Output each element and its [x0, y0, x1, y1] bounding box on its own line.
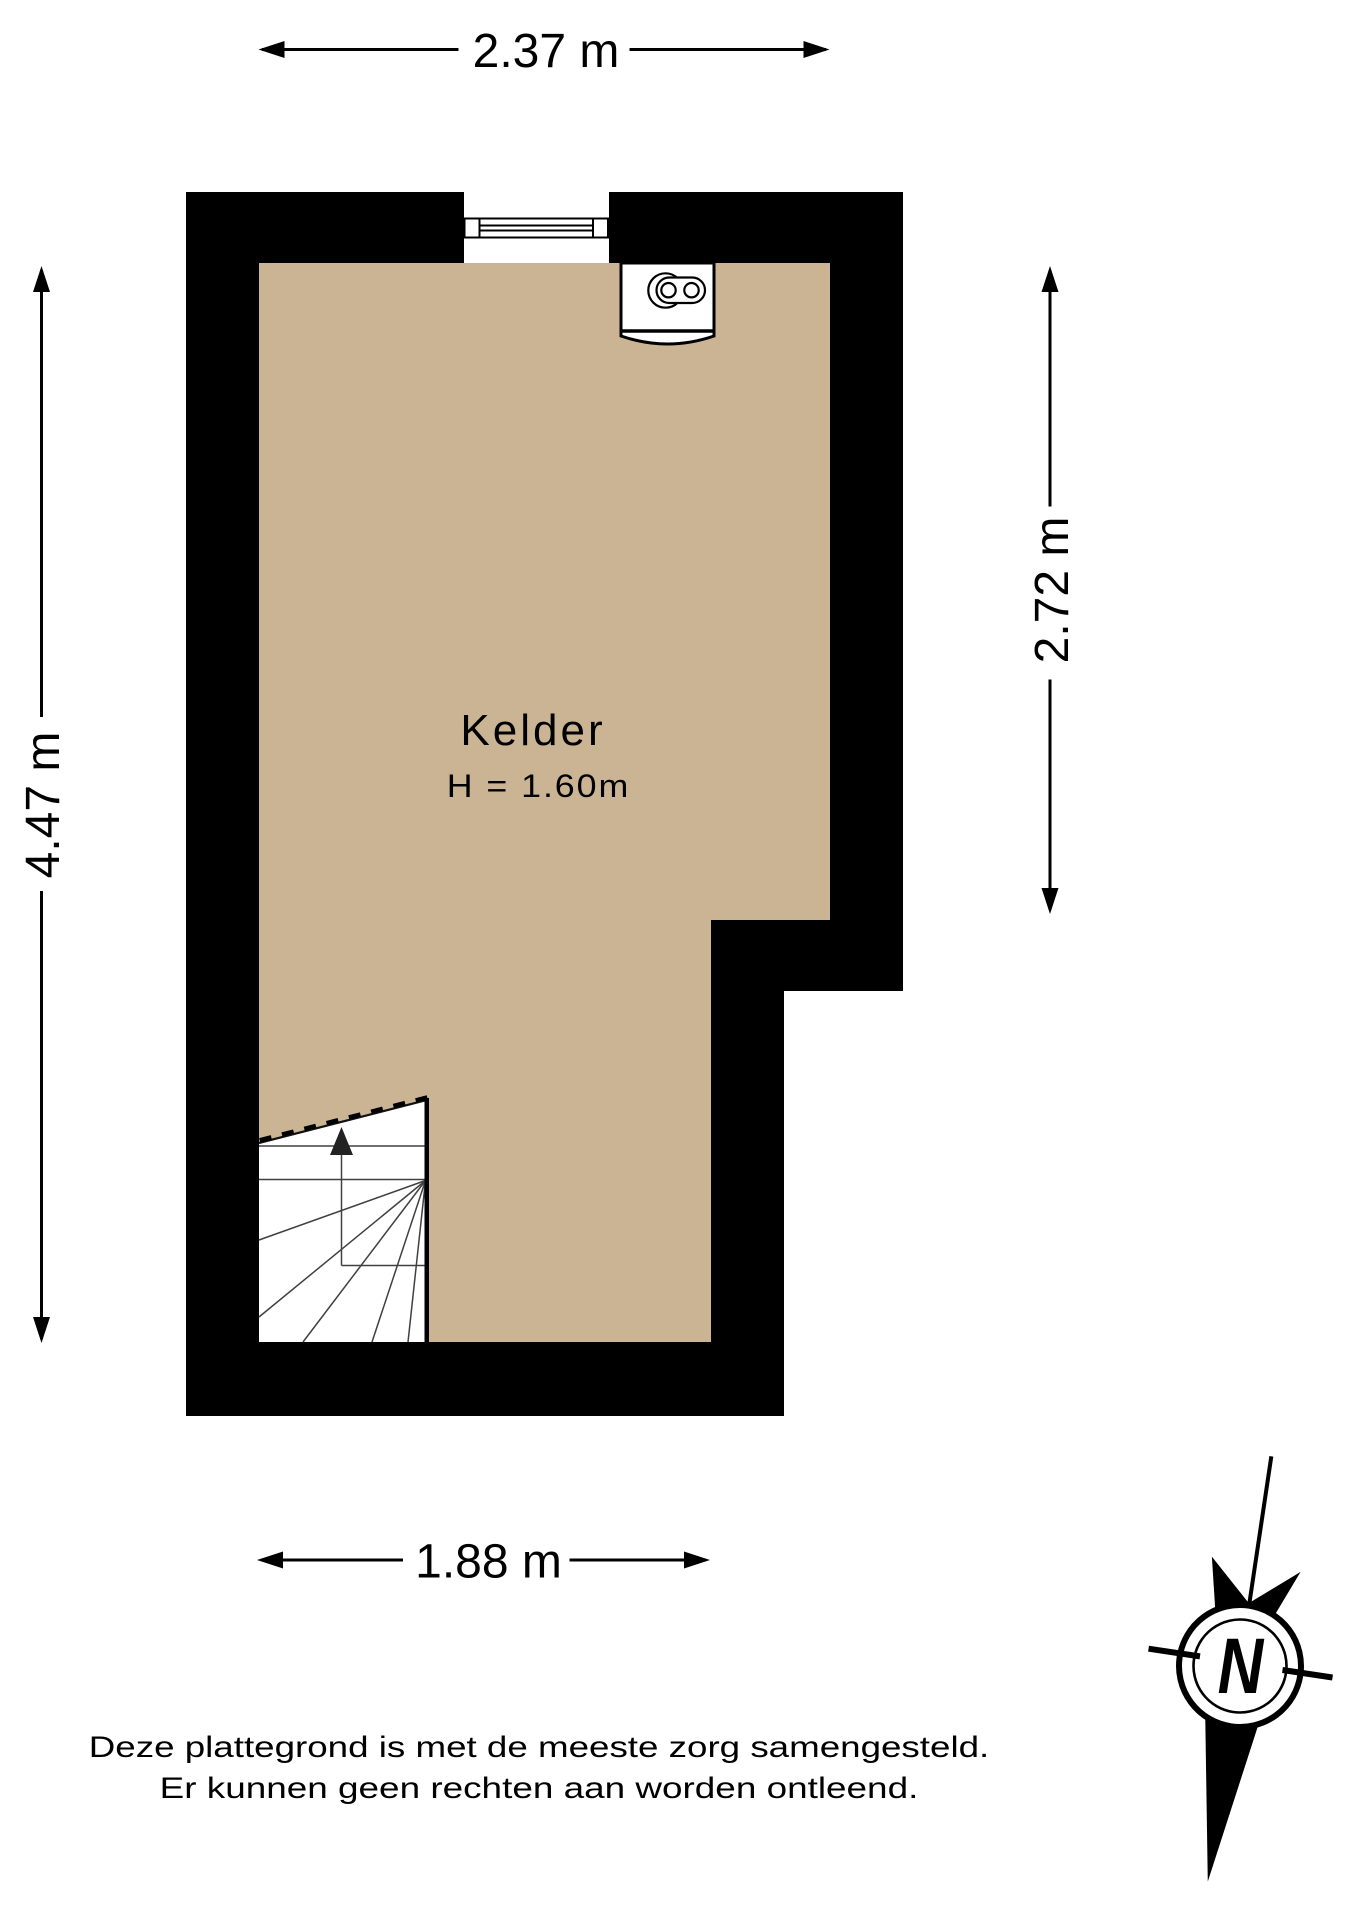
svg-text:2.72 m: 2.72 m: [1026, 517, 1079, 664]
svg-text:4.47 m: 4.47 m: [17, 732, 70, 879]
svg-text:Er kunnen geen rechten aan wor: Er kunnen geen rechten aan worden ontlee…: [160, 1772, 919, 1805]
svg-text:2.37 m: 2.37 m: [473, 25, 620, 78]
svg-text:1.88 m: 1.88 m: [415, 1535, 562, 1588]
svg-text:Deze plattegrond is met de mee: Deze plattegrond is met de meeste zorg s…: [89, 1731, 989, 1764]
svg-text:N: N: [1218, 1622, 1265, 1710]
svg-text:H = 1.60m: H = 1.60m: [447, 769, 630, 805]
svg-text:Kelder: Kelder: [460, 706, 605, 755]
